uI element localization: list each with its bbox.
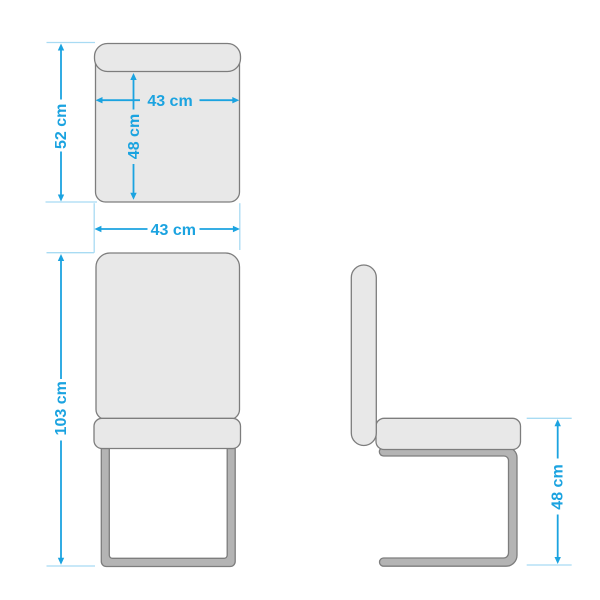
svg-text:48 cm: 48 cm [126,114,143,159]
svg-text:43 cm: 43 cm [147,93,192,110]
svg-text:48 cm: 48 cm [550,464,567,509]
svg-text:103 cm: 103 cm [53,381,70,435]
svg-text:52 cm: 52 cm [53,104,70,149]
svg-text:43 cm: 43 cm [151,222,196,239]
